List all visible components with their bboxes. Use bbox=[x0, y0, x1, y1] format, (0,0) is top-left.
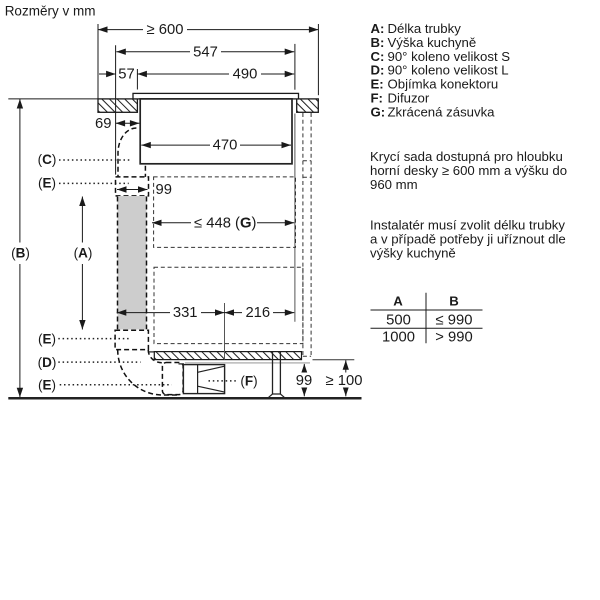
svg-text:výšky kuchyně: výšky kuchyně bbox=[370, 246, 456, 261]
svg-text:C:: C: bbox=[371, 49, 385, 64]
svg-text:D:: D: bbox=[371, 63, 385, 78]
svg-text:470: 470 bbox=[213, 138, 238, 154]
svg-text:500: 500 bbox=[386, 313, 411, 329]
svg-text:Objímka konektoru: Objímka konektoru bbox=[388, 77, 499, 92]
svg-text:99: 99 bbox=[156, 182, 172, 198]
svg-text:490: 490 bbox=[233, 67, 258, 83]
svg-text:Rozměry v mm: Rozměry v mm bbox=[5, 3, 96, 18]
svg-text:960 mm: 960 mm bbox=[370, 177, 418, 192]
svg-text:Difuzor: Difuzor bbox=[388, 91, 430, 106]
svg-text:G:: G: bbox=[371, 104, 386, 119]
svg-text:547: 547 bbox=[193, 44, 218, 60]
svg-text:F:: F: bbox=[371, 91, 383, 106]
svg-text:≥ 600: ≥ 600 bbox=[147, 22, 184, 38]
svg-text:216: 216 bbox=[245, 305, 270, 321]
svg-text:B:: B: bbox=[371, 35, 385, 50]
svg-text:90° koleno velikost S: 90° koleno velikost S bbox=[388, 49, 511, 64]
svg-text:331: 331 bbox=[173, 305, 198, 321]
svg-text:A: A bbox=[393, 293, 403, 308]
svg-text:(E): (E) bbox=[38, 331, 56, 346]
svg-text:99: 99 bbox=[296, 373, 312, 389]
svg-text:(F): (F) bbox=[240, 374, 257, 389]
svg-text:(E): (E) bbox=[38, 378, 56, 393]
svg-text:Zkrácená zásuvka: Zkrácená zásuvka bbox=[388, 104, 496, 119]
svg-text:> 990: > 990 bbox=[435, 329, 472, 345]
svg-text:horní desky ≥ 600 mm a výšku d: horní desky ≥ 600 mm a výšku do bbox=[370, 163, 567, 178]
svg-text:90° koleno velikost L: 90° koleno velikost L bbox=[388, 63, 509, 78]
svg-text:(C): (C) bbox=[38, 152, 57, 167]
svg-text:E:: E: bbox=[371, 77, 384, 92]
svg-text:Výška kuchyně: Výška kuchyně bbox=[388, 35, 477, 50]
svg-text:a v případě potřeby ji uříznou: a v případě potřeby ji uříznout dle bbox=[370, 232, 566, 247]
svg-text:≤ 990: ≤ 990 bbox=[436, 313, 473, 329]
svg-text:A:: A: bbox=[371, 21, 385, 36]
svg-text:1000: 1000 bbox=[382, 329, 415, 345]
svg-text:B: B bbox=[449, 293, 459, 308]
svg-text:Instalatér musí zvolit délku t: Instalatér musí zvolit délku trubky bbox=[370, 218, 565, 233]
svg-text:69: 69 bbox=[95, 116, 111, 132]
svg-text:≥ 100: ≥ 100 bbox=[326, 373, 363, 389]
svg-text:(D): (D) bbox=[38, 355, 57, 370]
svg-text:(A): (A) bbox=[74, 245, 93, 260]
svg-text:(B): (B) bbox=[11, 245, 30, 260]
svg-text:Délka trubky: Délka trubky bbox=[388, 21, 462, 36]
svg-text:(E): (E) bbox=[38, 176, 56, 191]
svg-text:Krycí sada dostupná pro hloubk: Krycí sada dostupná pro hloubku bbox=[370, 149, 563, 164]
svg-text:≤ 448 (G): ≤ 448 (G) bbox=[194, 215, 256, 231]
svg-text:57: 57 bbox=[118, 67, 134, 83]
